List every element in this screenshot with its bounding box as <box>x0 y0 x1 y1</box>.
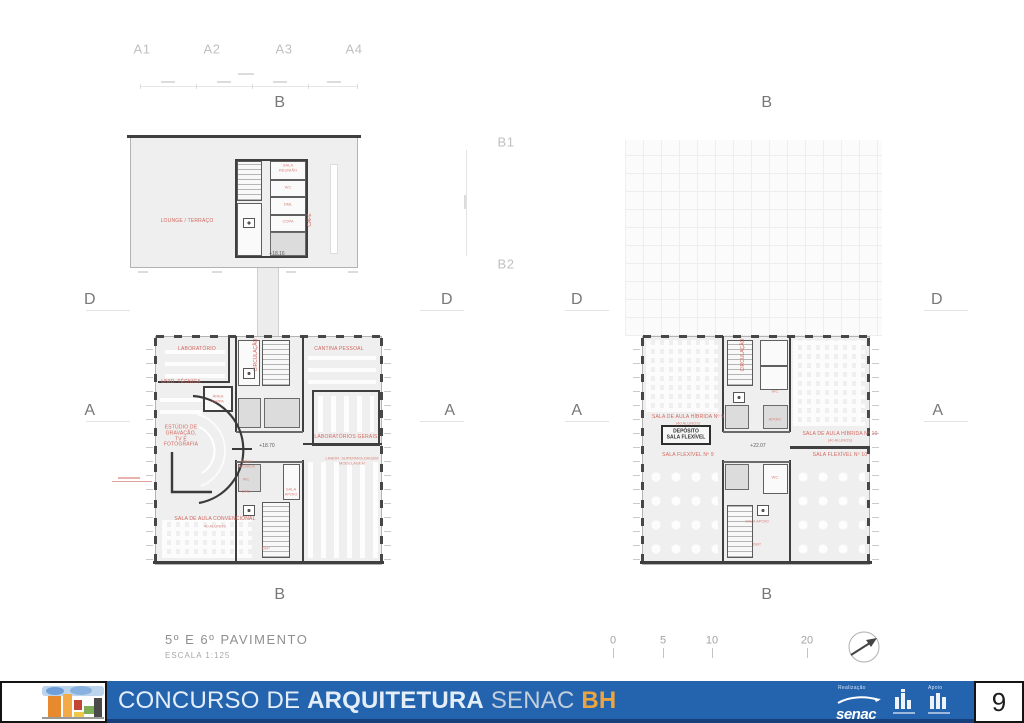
label: A2 <box>204 43 221 58</box>
label: CAFÉ <box>308 213 314 226</box>
labels-layer: A1A2A3A4BBB1B2DDDDAAAABBLOUNGE / TERRAÇO… <box>0 0 1024 723</box>
label: DEP. <box>753 543 762 548</box>
banner-title: CONCURSO DE ARQUITETURA SENAC BH <box>118 687 616 715</box>
label: APOIO <box>769 418 782 423</box>
label: D <box>931 291 943 309</box>
label: ÁREA LIMPA <box>212 394 224 403</box>
banner-title-senac: SENAC <box>484 687 581 714</box>
label: +18.16 <box>269 252 284 258</box>
label: SALA FLEXÍVEL Nº 9 <box>662 453 714 459</box>
label: SALA APOIO <box>285 487 298 496</box>
label: DML <box>242 490 250 495</box>
label: (40 ALUNOS) <box>828 439 852 444</box>
senac-logo: senac <box>836 691 882 723</box>
label: D <box>571 291 583 309</box>
label: SALA APOIO <box>745 520 769 525</box>
competition-logo-box <box>0 681 107 723</box>
label: 20 <box>801 635 813 648</box>
scale-bar-tick <box>712 648 713 658</box>
banner-title-regular: CONCURSO DE <box>118 687 307 714</box>
label: CIRCULAÇÃO <box>254 339 260 372</box>
label: A1 <box>134 43 151 58</box>
label: A <box>571 402 582 420</box>
competition-logo-collage <box>42 686 104 719</box>
label: DEPÓSITO SALA FLEXÍVEL <box>667 429 706 441</box>
label: SALA FLEXÍVEL Nº 10 <box>813 453 868 459</box>
partner-logo-2 <box>928 694 950 714</box>
label: +18.70 <box>259 444 274 450</box>
label: 40 ALUNOS <box>204 525 226 530</box>
label: A3 <box>276 43 293 58</box>
apoio-label: Apoio <box>928 685 942 691</box>
label: LABORATÓRIOS GERAIS <box>314 435 377 441</box>
label: LABOR. SUPERMOLDAGEM MODELAGEM <box>321 456 383 465</box>
sheet-scale: ESCALA 1:125 <box>165 651 230 660</box>
label: A <box>932 402 943 420</box>
label: WC <box>772 476 779 481</box>
label: LOUNGE / TERRAÇO <box>161 219 214 225</box>
label: CIRCULAÇÃO <box>741 339 747 372</box>
label: A <box>444 402 455 420</box>
scale-bar-tick <box>663 648 664 658</box>
partner-logo-1 <box>893 694 915 714</box>
label: (40 ALUNOS) <box>676 422 700 427</box>
label: DML <box>284 203 292 208</box>
label: B <box>761 586 772 604</box>
label: B <box>274 94 285 112</box>
label: A <box>84 402 95 420</box>
label: WC <box>243 478 250 483</box>
label: B2 <box>498 258 515 273</box>
label: SALA REUNIÃO <box>279 163 297 172</box>
label: 10 <box>706 635 718 648</box>
label: DEP. <box>262 547 271 552</box>
label: B <box>761 94 772 112</box>
label: D <box>84 291 96 309</box>
drawing-sheet: A1A2A3A4BBB1B2DDDDAAAABBLOUNGE / TERRAÇO… <box>0 0 1024 723</box>
scale-bar-tick <box>807 648 808 658</box>
label: UNID. TÉCNICA <box>161 380 200 386</box>
page-number-box: 9 <box>974 681 1024 723</box>
senac-wordmark: senac <box>836 706 882 723</box>
label: WC <box>772 390 779 395</box>
banner-title-bh: BH <box>581 687 616 714</box>
label: 0 <box>610 635 616 648</box>
label: WC <box>285 186 292 191</box>
banner-title-bold: ARQUITETURA <box>307 687 484 714</box>
label: A4 <box>346 43 363 58</box>
sheet-title: 5º E 6º PAVIMENTO <box>165 632 308 647</box>
label: COPA <box>282 220 293 225</box>
label: 5 <box>660 635 666 648</box>
label: B <box>274 586 285 604</box>
label: ESTÚDIO DE GRAVAÇÃO, TV E FOTOGRAFIA <box>158 426 204 449</box>
label: B1 <box>498 136 515 151</box>
label: LABORATÓRIO <box>178 347 216 353</box>
label: SALA DE AULA CONVENCIONAL <box>174 517 255 523</box>
label: D <box>441 291 453 309</box>
label: ÁREA TÉCNICA <box>237 459 255 468</box>
label: +22.07 <box>750 444 765 450</box>
scale-bar-tick <box>613 648 614 658</box>
page-number: 9 <box>992 687 1006 718</box>
label: CANTINA PESSOAL <box>314 347 363 353</box>
